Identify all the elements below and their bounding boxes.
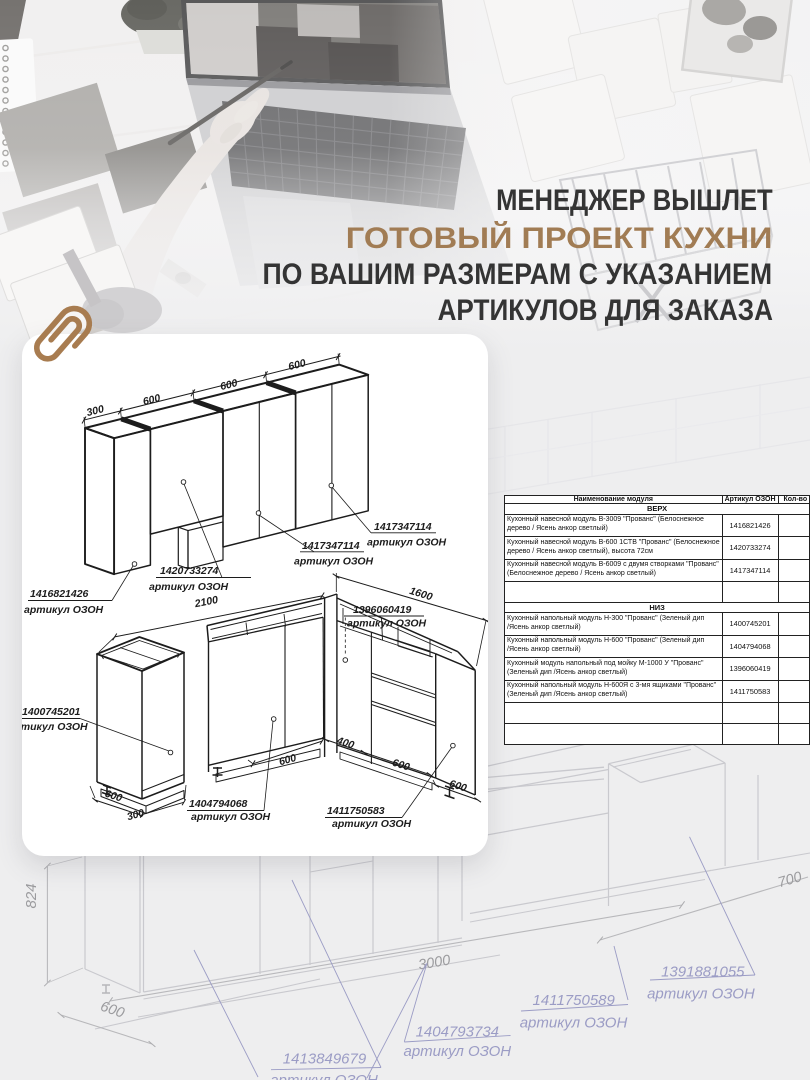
svg-text:артикул ОЗОН: артикул ОЗОН bbox=[367, 537, 447, 549]
svg-text:600: 600 bbox=[391, 757, 412, 774]
svg-text:артикул ОЗОН: артикул ОЗОН bbox=[24, 604, 104, 616]
svg-text:артикул ОЗОН: артикул ОЗОН bbox=[149, 581, 229, 593]
svg-text:1417347114: 1417347114 bbox=[302, 540, 360, 552]
svg-text:300: 300 bbox=[126, 807, 146, 823]
svg-text:артикул ОЗОН: артикул ОЗОН bbox=[9, 721, 89, 733]
svg-text:600: 600 bbox=[142, 392, 162, 408]
svg-text:1420733274: 1420733274 bbox=[160, 565, 219, 577]
svg-text:артикул ОЗОН: артикул ОЗОН bbox=[332, 818, 412, 830]
svg-text:1400745201: 1400745201 bbox=[22, 706, 81, 718]
svg-text:2100: 2100 bbox=[193, 594, 219, 610]
svg-text:артикул ОЗОН: артикул ОЗОН bbox=[347, 618, 427, 630]
svg-text:1417347114: 1417347114 bbox=[374, 521, 432, 533]
svg-text:1404794068: 1404794068 bbox=[189, 798, 248, 810]
svg-text:1600: 1600 bbox=[408, 585, 434, 603]
svg-text:1411750583: 1411750583 bbox=[327, 805, 385, 817]
svg-text:артикул ОЗОН: артикул ОЗОН bbox=[191, 811, 271, 823]
svg-text:1416821426: 1416821426 bbox=[30, 588, 89, 600]
svg-text:600: 600 bbox=[287, 357, 307, 373]
svg-text:1396060419: 1396060419 bbox=[353, 604, 412, 616]
svg-text:300: 300 bbox=[85, 403, 105, 419]
svg-text:артикул ОЗОН: артикул ОЗОН bbox=[294, 556, 374, 568]
svg-text:600: 600 bbox=[448, 778, 469, 795]
